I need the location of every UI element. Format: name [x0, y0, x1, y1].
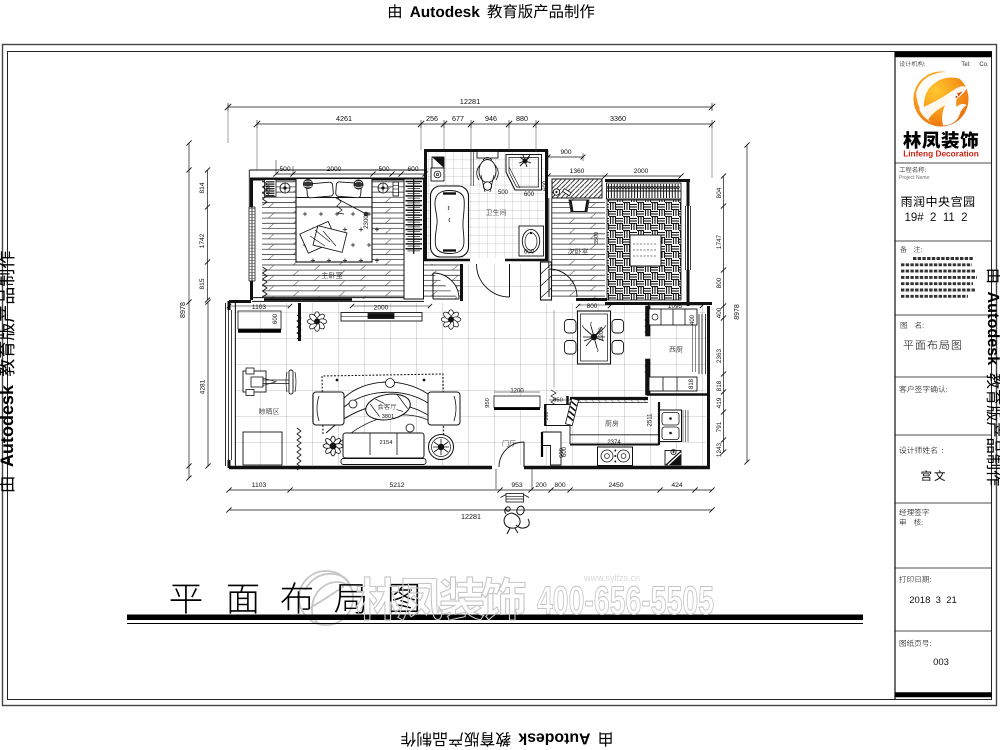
svg-text:1200: 1200: [599, 327, 605, 341]
svg-text:www.sylfzs.cn: www.sylfzs.cn: [583, 573, 640, 583]
svg-text:8978: 8978: [734, 304, 741, 320]
svg-text:1243: 1243: [716, 442, 723, 457]
svg-text:946: 946: [485, 114, 497, 123]
svg-text:2000: 2000: [327, 166, 342, 173]
svg-text:Project Name:: Project Name:: [899, 175, 931, 181]
svg-text:2450: 2450: [608, 482, 623, 489]
svg-text:600: 600: [407, 166, 418, 173]
svg-text:950: 950: [485, 398, 491, 408]
svg-text:800: 800: [554, 482, 566, 489]
svg-text:Tel:: Tel:: [961, 62, 971, 68]
svg-text:953: 953: [511, 482, 523, 489]
svg-text:2300: 2300: [363, 215, 370, 229]
svg-text:360: 360: [544, 412, 550, 421]
svg-text:2374: 2374: [607, 440, 621, 446]
svg-text:818: 818: [689, 378, 695, 389]
svg-text:600: 600: [543, 180, 549, 191]
svg-text:677: 677: [452, 114, 464, 123]
svg-text:600: 600: [559, 448, 565, 458]
svg-text:791: 791: [716, 421, 723, 432]
svg-text:Linfeng Decoration: Linfeng Decoration: [903, 149, 979, 159]
svg-text:2000: 2000: [634, 168, 649, 175]
svg-text:1103: 1103: [252, 482, 267, 489]
svg-text:Co.: Co.: [979, 62, 989, 68]
svg-text:12281: 12281: [460, 97, 481, 106]
svg-text:900: 900: [560, 149, 571, 156]
svg-text:1742: 1742: [199, 233, 206, 248]
svg-text:800: 800: [587, 303, 598, 310]
svg-text:800: 800: [716, 277, 723, 288]
svg-text:003: 003: [933, 657, 949, 668]
svg-text:1747: 1747: [716, 234, 723, 249]
svg-text:1200: 1200: [510, 389, 524, 395]
svg-text:400-656-5505: 400-656-5505: [537, 579, 714, 623]
svg-text:600: 600: [524, 191, 535, 198]
svg-text:424: 424: [671, 482, 683, 489]
svg-text:3801: 3801: [382, 414, 394, 420]
svg-text:600: 600: [524, 249, 535, 256]
svg-text:600: 600: [273, 313, 279, 324]
svg-text:200: 200: [535, 482, 547, 489]
svg-text:804: 804: [716, 187, 723, 198]
svg-text:2154: 2154: [380, 440, 394, 446]
svg-text:8978: 8978: [178, 302, 187, 318]
svg-text:500: 500: [378, 166, 389, 173]
svg-text:19# 2 11 2: 19# 2 11 2: [904, 212, 967, 224]
svg-text:500: 500: [498, 190, 509, 196]
svg-text:400: 400: [690, 314, 696, 325]
svg-text:880: 880: [516, 114, 528, 123]
svg-text:4281: 4281: [200, 379, 207, 394]
svg-text:815: 815: [199, 278, 206, 289]
svg-text:2363: 2363: [716, 348, 723, 363]
svg-text:3500: 3500: [594, 232, 600, 244]
svg-text:814: 814: [199, 182, 206, 193]
svg-text:2000: 2000: [374, 305, 389, 312]
svg-text:419: 419: [716, 397, 723, 408]
svg-text:1095: 1095: [668, 303, 683, 310]
svg-text:3360: 3360: [610, 114, 626, 123]
svg-text:256: 256: [426, 114, 438, 123]
svg-text:12281: 12281: [461, 512, 481, 521]
svg-text:650: 650: [553, 398, 563, 404]
svg-text:400: 400: [716, 307, 723, 318]
svg-text:1360: 1360: [570, 168, 585, 175]
svg-text:500: 500: [279, 166, 290, 173]
svg-text:4261: 4261: [336, 114, 352, 123]
svg-text:2511: 2511: [648, 413, 654, 427]
svg-text:1103: 1103: [252, 304, 267, 311]
svg-text:818: 818: [716, 380, 723, 391]
svg-text:5212: 5212: [389, 482, 404, 489]
svg-text:2018 3 21: 2018 3 21: [909, 595, 957, 606]
svg-text:400: 400: [266, 184, 272, 195]
